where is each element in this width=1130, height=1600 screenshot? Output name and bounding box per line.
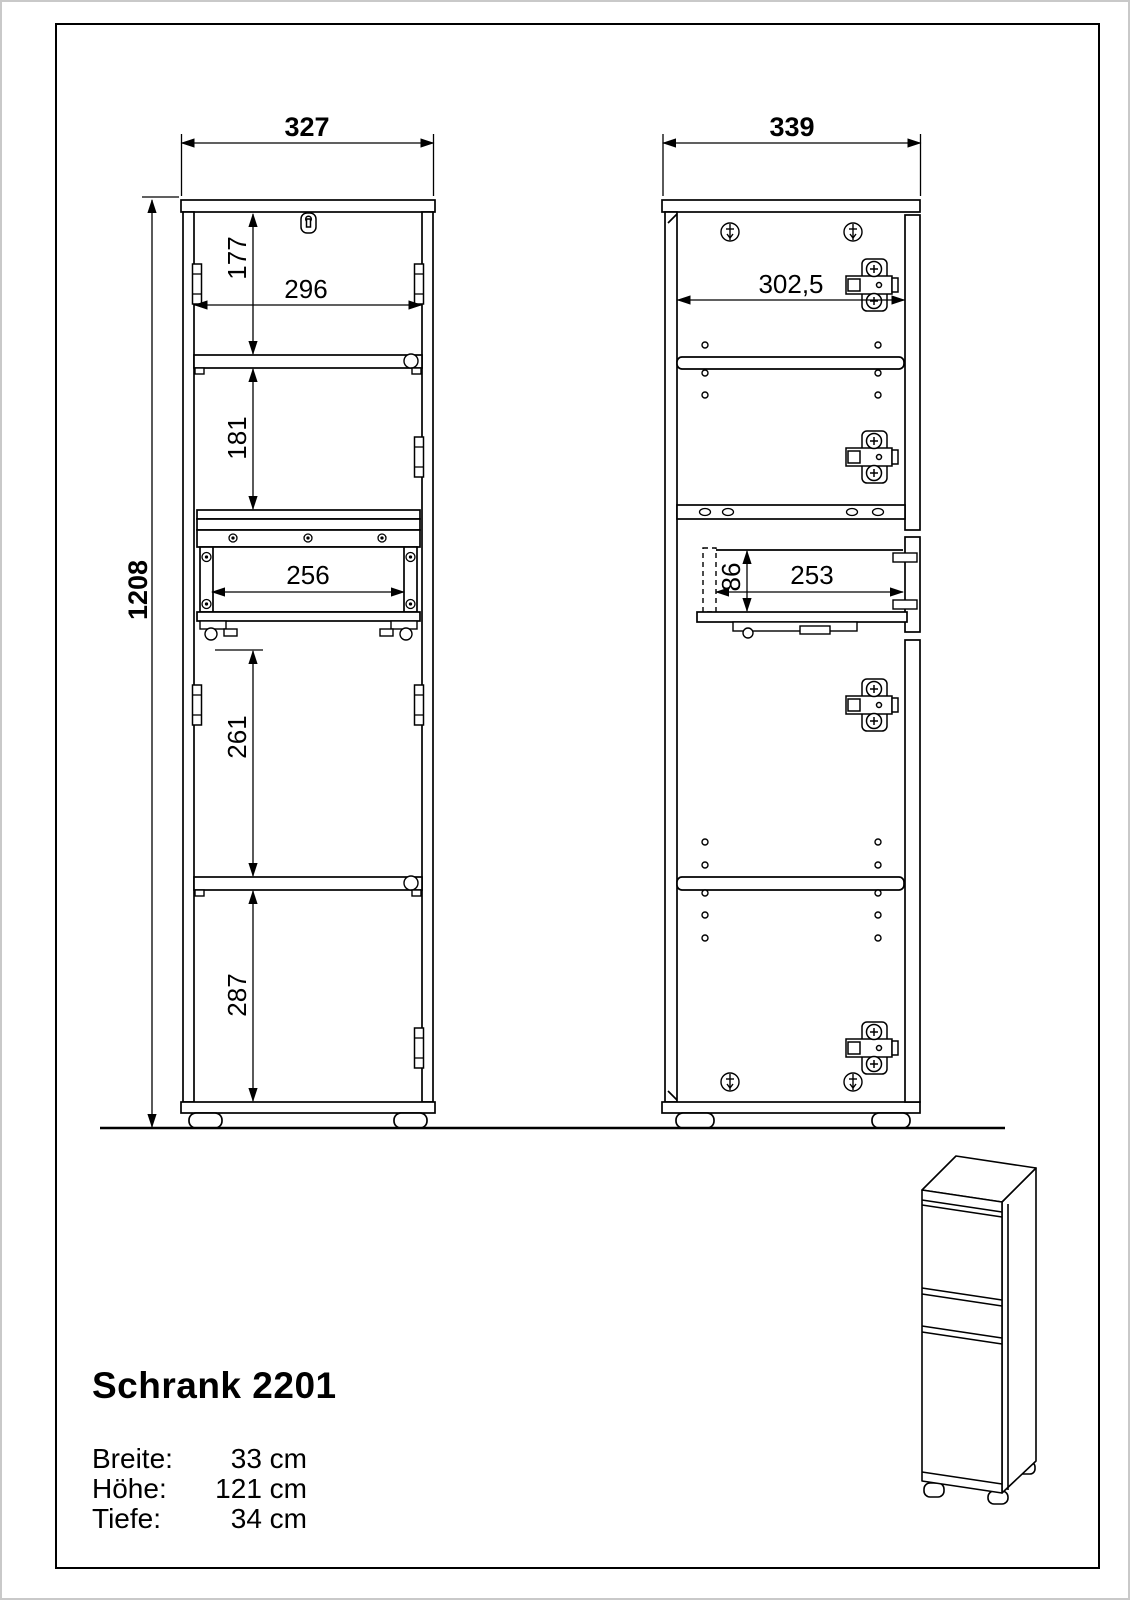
dim-front-width: 327 [284, 112, 329, 142]
spec-value: 33 cm [207, 1444, 307, 1474]
spec-label: Höhe: [92, 1474, 207, 1504]
dim-side-inner-depth: 302,5 [758, 269, 823, 299]
cam-lock-lower [404, 876, 418, 890]
hinge-icon [193, 685, 202, 725]
hinge-icon [415, 437, 424, 477]
side-foot-front [872, 1113, 910, 1128]
spec-row-hoehe: Höhe: 121 cm [92, 1474, 307, 1504]
sketch-foot [924, 1483, 944, 1497]
dim-front-section-bottom: 287 [222, 973, 252, 1016]
dim-total-height: 1208 [123, 560, 153, 620]
dim-front-section-top: 177 [222, 236, 252, 279]
dim-front-section-lower: 261 [222, 715, 252, 758]
screw-icon [844, 1073, 862, 1091]
technical-drawing: 327 296 177 181 256 261 287 1208 [0, 0, 1130, 1600]
drawer-runner [733, 622, 857, 638]
sketch-right-face [1002, 1168, 1036, 1493]
front-right-wall [422, 212, 433, 1102]
drawer-rail-front [197, 510, 420, 547]
dim-drawer-depth: 253 [790, 560, 833, 590]
cam-lock-upper [404, 354, 418, 368]
hinge-icon [415, 1028, 424, 1068]
front-shelf-lower [194, 877, 422, 890]
keyhole-icon [301, 213, 316, 233]
dim-drawer-height: 86 [716, 563, 746, 592]
hinge-icon [415, 264, 424, 304]
front-top-panel [181, 200, 435, 212]
side-door-lower [905, 640, 920, 1102]
spec-label: Tiefe: [92, 1504, 207, 1534]
front-left-wall [183, 212, 194, 1102]
front-bottom-panel [181, 1102, 435, 1113]
cabinet-3d-sketch [922, 1156, 1036, 1504]
drawer-slide-left [200, 621, 237, 640]
front-foot-right [394, 1113, 427, 1128]
side-bottom-panel [662, 1102, 920, 1113]
screw-icon [721, 223, 739, 241]
hinge-icon [415, 685, 424, 725]
screw-icon [844, 223, 862, 241]
shelf-pin-holes [702, 342, 881, 941]
side-view [662, 200, 920, 1128]
side-top-panel [662, 200, 920, 212]
front-view [181, 200, 435, 1128]
dim-front-section-mid: 181 [222, 416, 252, 459]
hinge-plate-icon [846, 431, 898, 483]
dim-side-depth: 339 [769, 112, 814, 142]
side-shelf-lower [677, 877, 904, 890]
hinge-icon [193, 264, 202, 304]
hinge-plate-icon [846, 259, 898, 311]
side-shelf-upper [677, 357, 904, 369]
front-shelf-upper [194, 355, 422, 368]
product-title: Schrank 2201 [92, 1365, 337, 1407]
spec-value: 121 cm [207, 1474, 307, 1504]
spec-value: 34 cm [207, 1504, 307, 1534]
spec-row-tiefe: Tiefe: 34 cm [92, 1504, 307, 1534]
front-foot-left [189, 1113, 222, 1128]
side-foot-back [676, 1113, 714, 1128]
spec-row-breite: Breite: 33 cm [92, 1444, 307, 1474]
screw-icon [721, 1073, 739, 1091]
drawer-slide-right [380, 621, 417, 640]
hinge-plate-icon [846, 679, 898, 731]
side-back-wall [665, 212, 677, 1102]
dim-drawer-width: 256 [286, 560, 329, 590]
drawer-rail-side [677, 505, 905, 519]
spec-table: Breite: 33 cm Höhe: 121 cm Tiefe: 34 cm [92, 1444, 307, 1534]
spec-label: Breite: [92, 1444, 207, 1474]
dim-front-inner-width: 296 [284, 274, 327, 304]
side-door-upper [905, 215, 920, 530]
hinge-plate-icon [846, 1022, 898, 1074]
